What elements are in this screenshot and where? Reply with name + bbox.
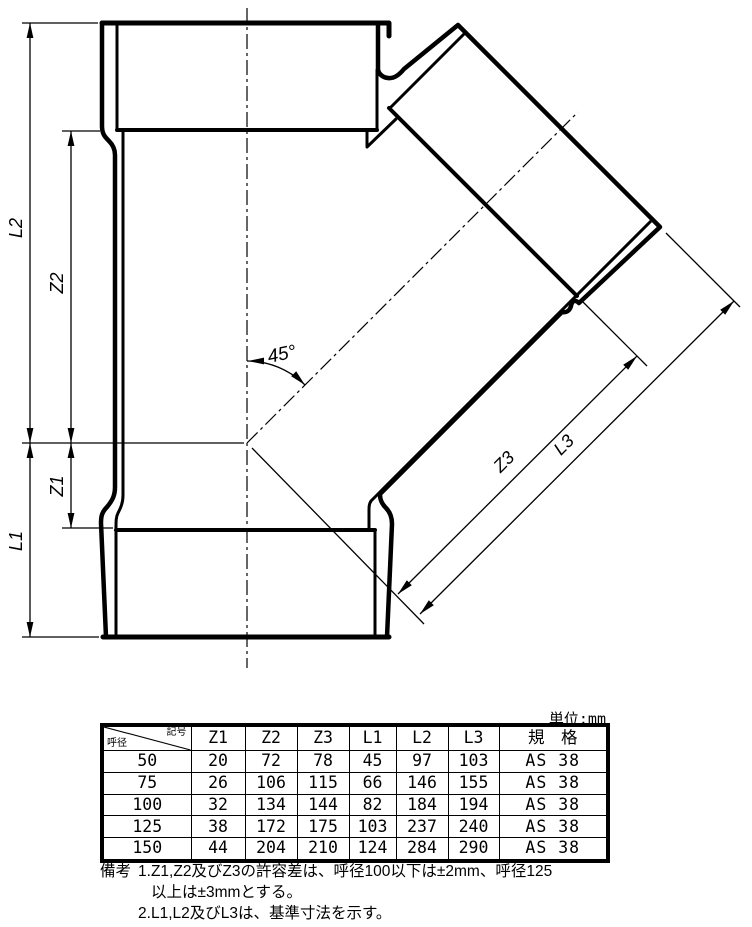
wye-fitting-drawing: L2 Z2 Z1 L1 Z3 L3 45° <box>0 0 752 700</box>
remarks-block: 備考 1. Z1,Z2及びZ3の許容差は、呼径100以下は±2mm、呼径125以… <box>100 861 700 924</box>
remark-item-1: 1. Z1,Z2及びZ3の許容差は、呼径100以下は±2mm、呼径125以上は±… <box>138 861 552 903</box>
col-header-z2: Z2 <box>245 725 297 751</box>
corner-label-symbol: 記号 <box>167 728 187 738</box>
label-L1: L1 <box>6 531 26 551</box>
remark-item-2: 2. L1,L2及びL3は、基準寸法を示す。 <box>138 903 552 924</box>
label-Z1: Z1 <box>47 475 67 497</box>
cell-dia: 75 <box>102 772 191 794</box>
dimension-lines <box>30 23 734 637</box>
remark-2-text: L1,L2及びL3は、基準寸法を示す。 <box>151 903 391 924</box>
table-row: 50 20 72 78 45 97 103 AS 38 <box>102 751 608 773</box>
branch-axis-centerline <box>247 112 578 443</box>
table-header-row: 記号 呼径 Z1 Z2 Z3 L1 L2 L3 規 格 <box>102 725 608 751</box>
col-header-z1: Z1 <box>191 725 245 751</box>
dim-line-L3 <box>420 301 734 614</box>
table-row: 125 38 172 175 103 237 240 AS 38 <box>102 816 608 838</box>
cell-dia: 150 <box>102 838 191 861</box>
dim-line-Z3 <box>398 356 637 594</box>
remarks-list: 1. Z1,Z2及びZ3の許容差は、呼径100以下は±2mm、呼径125以上は±… <box>138 861 552 924</box>
drawing-sheet: L2 Z2 Z1 L1 Z3 L3 45° 単位:mm 記号 呼径 <box>0 0 752 927</box>
remarks-label: 備考 <box>100 861 131 924</box>
corner-label-diameter: 呼径 <box>107 739 127 749</box>
centerlines <box>247 8 578 668</box>
label-Z2: Z2 <box>47 272 67 294</box>
remark-1-text: Z1,Z2及びZ3の許容差は、呼径100以下は±2mm、呼径125以上は±3mm… <box>151 861 552 903</box>
label-L3: L3 <box>550 431 578 459</box>
label-L2: L2 <box>6 218 26 238</box>
col-header-l2: L2 <box>396 725 448 751</box>
remark-2-number: 2. <box>138 903 151 924</box>
cell-dia: 100 <box>102 794 191 816</box>
table-row: 150 44 204 210 124 284 290 AS 38 <box>102 838 608 861</box>
col-header-l3: L3 <box>448 725 499 751</box>
extension-lines <box>22 23 740 637</box>
table-corner-cell: 記号 呼径 <box>102 725 191 751</box>
table-row: 75 26 106 115 66 146 155 AS 38 <box>102 772 608 794</box>
col-header-z3: Z3 <box>297 725 349 751</box>
fitting-outline <box>101 23 660 637</box>
col-header-l1: L1 <box>349 725 396 751</box>
table-row: 100 32 134 144 82 184 194 AS 38 <box>102 794 608 816</box>
label-Z3: Z3 <box>489 447 519 477</box>
remark-1-number: 1. <box>138 861 151 903</box>
fitting-inner-lines <box>116 26 652 636</box>
dimension-arrowheads <box>27 23 734 637</box>
dimension-table: 記号 呼径 Z1 Z2 Z3 L1 L2 L3 規 格 50 20 72 78 … <box>100 723 610 863</box>
cell-dia: 50 <box>102 751 191 773</box>
col-header-standard: 規 格 <box>499 725 608 751</box>
label-angle-45: 45° <box>266 341 299 368</box>
cell-dia: 125 <box>102 816 191 838</box>
